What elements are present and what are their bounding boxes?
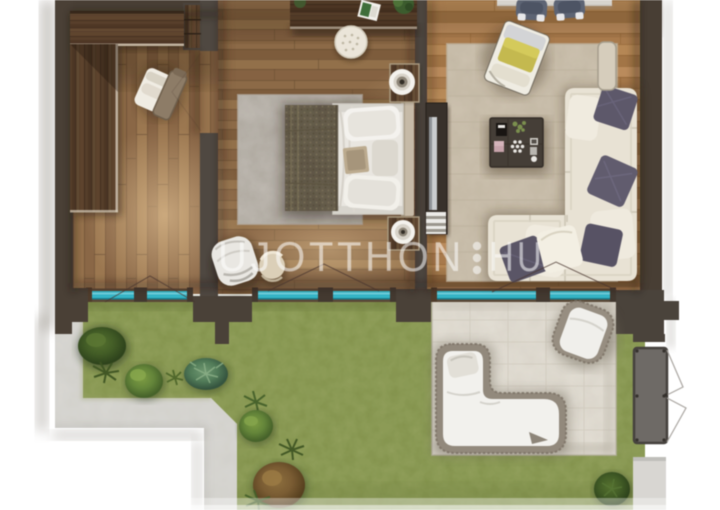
svg-text:UJOTTHON: UJOTTHON [218,233,465,280]
svg-text:HU: HU [489,233,545,280]
